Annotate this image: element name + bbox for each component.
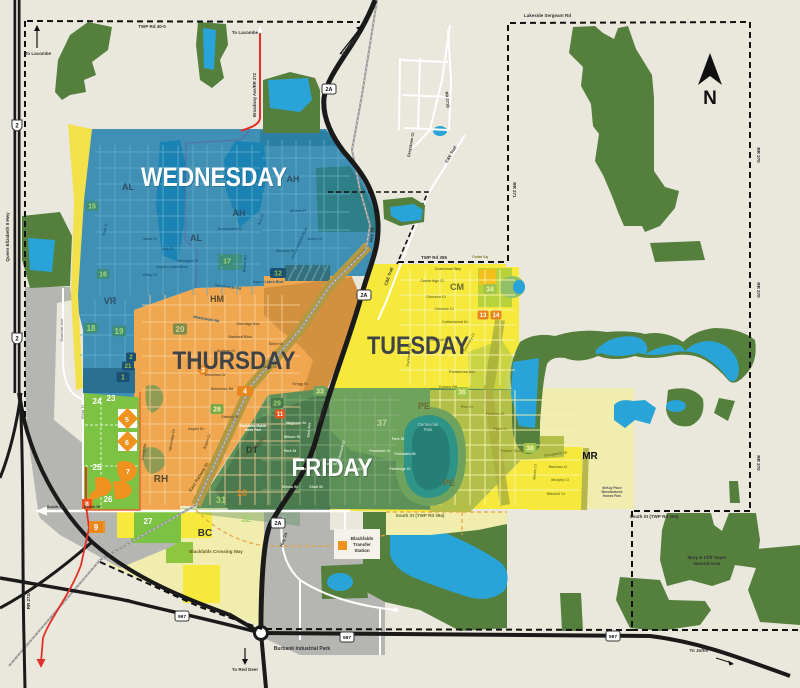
svg-text:Winston Pl: Winston Pl <box>276 249 295 253</box>
svg-text:Blackfalds: Blackfalds <box>351 536 374 541</box>
svg-text:Burbank Industrial Park: Burbank Industrial Park <box>274 646 331 652</box>
svg-text:2A: 2A <box>325 87 332 93</box>
svg-text:South St: South St <box>84 504 101 509</box>
svg-text:Cyprus Rd: Cyprus Rd <box>439 385 457 389</box>
svg-text:Home Park: Home Park <box>245 428 262 432</box>
svg-text:Coachman Way: Coachman Way <box>435 267 462 271</box>
svg-text:Stanley St: Stanley St <box>221 415 239 419</box>
svg-text:RH: RH <box>154 474 168 485</box>
svg-text:9: 9 <box>94 523 99 532</box>
svg-text:RR 270: RR 270 <box>756 455 761 471</box>
svg-text:20: 20 <box>176 325 185 334</box>
svg-text:Queen Elizabeth II Hwy: Queen Elizabeth II Hwy <box>5 212 10 262</box>
svg-text:Transfer: Transfer <box>353 542 371 547</box>
svg-text:Maclean Cl: Maclean Cl <box>549 465 568 469</box>
svg-text:Aztec Cr: Aztec Cr <box>308 237 323 241</box>
svg-text:RR 270: RR 270 <box>756 147 761 163</box>
svg-text:11: 11 <box>277 412 284 418</box>
svg-text:PE: PE <box>418 401 430 411</box>
svg-text:N: N <box>703 88 717 109</box>
svg-text:16: 16 <box>99 272 107 279</box>
svg-text:6: 6 <box>125 440 129 447</box>
svg-text:25: 25 <box>93 463 102 472</box>
svg-text:34: 34 <box>486 287 494 294</box>
svg-text:26: 26 <box>104 495 113 504</box>
svg-text:29: 29 <box>273 401 281 408</box>
svg-text:Crimson Ct: Crimson Ct <box>426 295 446 299</box>
svg-text:Arrowwood Cl: Arrowwood Cl <box>218 227 242 231</box>
svg-text:17: 17 <box>223 259 231 266</box>
svg-text:RR 271: RR 271 <box>512 182 517 198</box>
svg-text:AL: AL <box>190 233 202 243</box>
svg-text:Parkridge Cr: Parkridge Cr <box>389 467 411 471</box>
svg-text:PE: PE <box>443 478 455 488</box>
svg-text:To Lacombe: To Lacombe <box>25 51 52 56</box>
svg-text:10: 10 <box>237 488 247 498</box>
svg-text:Waghorn St: Waghorn St <box>286 421 307 425</box>
svg-text:31: 31 <box>216 495 226 505</box>
svg-text:Aspen Lakes Blvd: Aspen Lakes Blvd <box>157 265 188 269</box>
svg-text:21: 21 <box>125 364 132 370</box>
svg-text:Park St: Park St <box>392 437 405 441</box>
svg-text:Ponderosa Ave: Ponderosa Ave <box>449 370 475 374</box>
svg-text:Lakeside Sergeant Rd: Lakeside Sergeant Rd <box>524 13 571 18</box>
svg-text:Stanford Blvd: Stanford Blvd <box>228 335 252 339</box>
svg-text:TUESDAY: TUESDAY <box>367 332 469 360</box>
svg-text:Wilson St: Wilson St <box>284 435 301 439</box>
svg-text:Mitchell Cr: Mitchell Cr <box>547 492 566 496</box>
svg-text:Park St: Park St <box>284 449 297 453</box>
svg-text:TWP Rd 40-0: TWP Rd 40-0 <box>138 24 166 29</box>
svg-text:South St (TWP Rd 394): South St (TWP Rd 394) <box>396 513 445 518</box>
svg-text:To Lacombe: To Lacombe <box>232 30 259 35</box>
svg-text:Westgate Cr: Westgate Cr <box>178 259 200 263</box>
svg-text:Cottonwood Dr: Cottonwood Dr <box>442 320 469 324</box>
svg-text:Cedar Sq: Cedar Sq <box>472 255 488 259</box>
svg-text:Aspen Dr: Aspen Dr <box>188 427 205 431</box>
svg-text:597: 597 <box>178 614 186 620</box>
svg-text:36: 36 <box>458 390 466 397</box>
svg-text:5: 5 <box>125 417 129 424</box>
svg-text:24: 24 <box>93 397 102 406</box>
svg-text:South St: South St <box>47 504 64 509</box>
svg-text:WEDNESDAY: WEDNESDAY <box>141 162 287 192</box>
svg-text:1: 1 <box>121 375 125 382</box>
svg-text:23: 23 <box>107 394 116 403</box>
svg-text:13: 13 <box>480 313 487 319</box>
svg-text:Valley Cr: Valley Cr <box>142 273 158 277</box>
svg-text:FRIDAY: FRIDAY <box>292 454 373 482</box>
svg-text:597: 597 <box>609 634 617 640</box>
svg-text:Pinetree Cl: Pinetree Cl <box>486 412 505 416</box>
svg-text:2A: 2A <box>274 521 281 527</box>
svg-text:Cambridge Cl: Cambridge Cl <box>420 279 443 283</box>
svg-text:To Red Deer: To Red Deer <box>232 667 258 672</box>
svg-text:32: 32 <box>241 514 251 524</box>
svg-text:2A: 2A <box>360 293 367 299</box>
svg-text:Homes Park: Homes Park <box>603 494 622 498</box>
svg-text:Pondside Cr: Pondside Cr <box>369 449 391 453</box>
svg-text:4: 4 <box>243 389 247 396</box>
svg-text:Shull St: Shull St <box>309 485 323 489</box>
svg-text:Winkо St: Winkо St <box>282 485 298 489</box>
svg-text:7: 7 <box>126 469 130 476</box>
svg-text:MR: MR <box>582 451 598 462</box>
svg-text:27: 27 <box>144 517 153 526</box>
svg-text:AH: AH <box>287 174 300 184</box>
svg-text:Broadway Ave/RR 272: Broadway Ave/RR 272 <box>252 72 257 117</box>
svg-text:Pine Cr: Pine Cr <box>461 405 474 409</box>
svg-text:28: 28 <box>213 407 221 414</box>
svg-text:Blackfalds Crossing Way: Blackfalds Crossing Way <box>189 549 243 554</box>
svg-text:TWP Rd 395: TWP Rd 395 <box>421 255 447 260</box>
svg-text:Natural Area: Natural Area <box>694 561 721 566</box>
svg-text:Piper Cl: Piper Cl <box>493 427 507 431</box>
svg-text:Palisades St: Palisades St <box>394 452 416 456</box>
svg-text:15: 15 <box>88 204 96 211</box>
svg-text:CM: CM <box>450 282 464 292</box>
svg-text:VR: VR <box>104 296 117 306</box>
svg-text:Station: Station <box>354 548 370 553</box>
svg-text:Anna Cl: Anna Cl <box>143 237 157 241</box>
svg-text:12: 12 <box>274 271 282 278</box>
svg-text:Sunridge Ave: Sunridge Ave <box>237 322 260 326</box>
svg-text:Mary & Cliff Soper: Mary & Cliff Soper <box>687 555 726 560</box>
svg-text:AH: AH <box>233 208 246 218</box>
svg-text:THURSDAY: THURSDAY <box>173 347 296 375</box>
svg-text:38: 38 <box>526 446 534 453</box>
svg-text:Ava Cr: Ava Cr <box>162 247 174 251</box>
svg-text:Womacks Rd: Womacks Rd <box>211 387 234 391</box>
svg-text:BC: BC <box>198 528 212 539</box>
svg-text:597: 597 <box>343 635 351 641</box>
svg-text:18: 18 <box>87 324 96 333</box>
svg-text:Murphy Cl: Murphy Cl <box>551 478 569 482</box>
svg-text:Vista Tr: Vista Tr <box>80 404 85 419</box>
svg-text:37: 37 <box>377 418 387 428</box>
svg-text:Duncan Ave: Duncan Ave <box>59 318 64 342</box>
svg-text:Crimson Cl: Crimson Cl <box>434 307 453 311</box>
svg-text:Athens Pl: Athens Pl <box>290 209 307 213</box>
svg-text:South St (TWP Rd 394): South St (TWP Rd 394) <box>630 514 679 519</box>
svg-text:33: 33 <box>316 389 324 396</box>
svg-text:Park: Park <box>424 427 434 432</box>
svg-text:To Joffre: To Joffre <box>690 648 709 653</box>
svg-text:RR 272A: RR 272A <box>26 590 31 609</box>
svg-text:19: 19 <box>115 327 124 336</box>
svg-text:AL: AL <box>122 182 134 192</box>
svg-text:14: 14 <box>493 313 500 319</box>
svg-text:RR 270: RR 270 <box>756 282 761 298</box>
svg-text:Palmer Circle: Palmer Circle <box>501 449 524 453</box>
svg-text:Silver Dr: Silver Dr <box>269 342 284 346</box>
svg-text:Aspen Lakes Blvd: Aspen Lakes Blvd <box>253 280 284 284</box>
svg-text:Gregg St: Gregg St <box>292 382 308 386</box>
svg-text:HM: HM <box>210 294 224 304</box>
